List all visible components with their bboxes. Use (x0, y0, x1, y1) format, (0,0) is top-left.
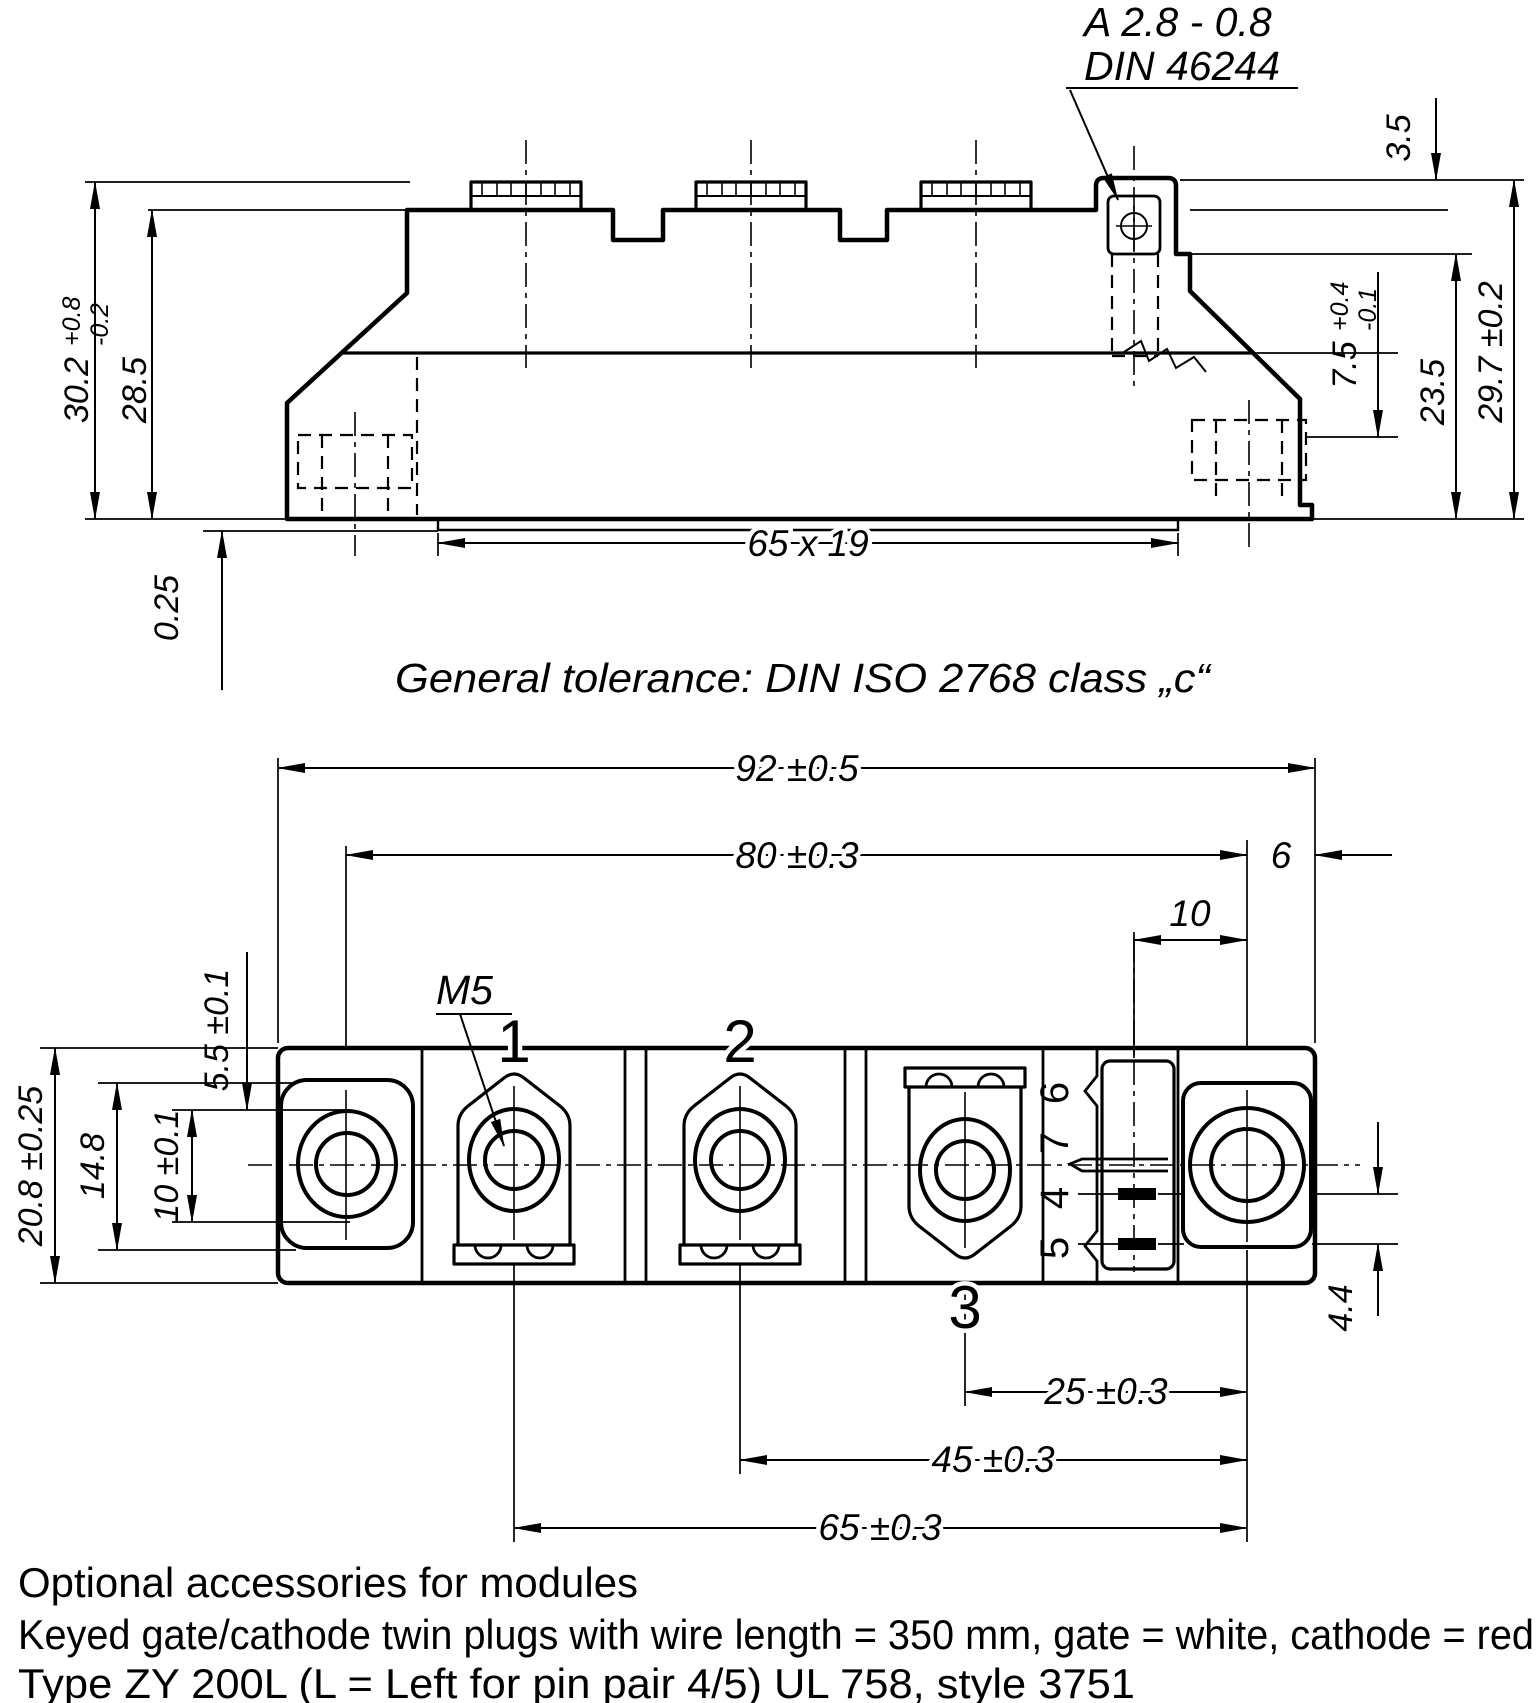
plug-note-line1: A 2.8 - 0.8 (1081, 0, 1272, 45)
thread-label-m5: M5 (436, 967, 493, 1013)
terminal-3-label: 3 (948, 1274, 981, 1341)
svg-text:30.2: 30.2 (58, 357, 96, 423)
footer-notes: Optional accessories for modules Keyed g… (18, 1559, 1534, 1703)
footer-line-2: Keyed gate/cathode twin plugs with wire … (18, 1611, 1534, 1658)
dim-6: 6 (1271, 835, 1292, 876)
dim-45: 45 ±0.3 (931, 1439, 1055, 1480)
dim-5-5: 5.5 ±0.1 (198, 969, 236, 1092)
side-extension-lines (85, 180, 1524, 556)
side-view: A 2.8 - 0.8 DIN 46244 3.5 30.2 +0.8 -0.2… (58, 0, 1524, 701)
dim-0-25: 0.25 (148, 575, 186, 641)
dim-65: 65 ±0.3 (818, 1507, 942, 1548)
side-dimension-lines (95, 88, 1514, 690)
svg-text:-0.2: -0.2 (86, 303, 114, 346)
dim-10: 10 (1169, 893, 1211, 934)
dim-23-5: 23.5 (1414, 359, 1452, 426)
pin-4-stub (1118, 1188, 1156, 1200)
terminal-2-label: 2 (723, 1008, 756, 1075)
dim-25: 25 ±0.3 (1043, 1371, 1168, 1412)
dim-4-4: 4.4 (1322, 1284, 1360, 1331)
dim-30-2: 30.2 +0.8 -0.2 (58, 297, 114, 424)
svg-text:5: 5 (1033, 1237, 1077, 1259)
dim-65x19: 65 x 19 (747, 523, 868, 564)
top-view: 92 ±0.5 80 ±0.3 6 10 M5 5.5 ±0.1 20.8 ±0… (12, 748, 1398, 1548)
dim-7-5: 7.5 +0.4 -0.1 (1326, 282, 1382, 389)
pin-5-label: 5 (1033, 1237, 1077, 1259)
svg-text:10 ±0.1: 10 ±0.1 (148, 1109, 186, 1222)
svg-text:28.5: 28.5 (116, 357, 154, 424)
svg-text:+0.4: +0.4 (1326, 282, 1354, 331)
dim-10-hole: 10 ±0.1 (148, 1109, 186, 1222)
svg-text:20.8 ±0.25: 20.8 ±0.25 (12, 1086, 50, 1248)
pin-7-label: 7 (1033, 1132, 1077, 1154)
svg-text:3.5: 3.5 (1380, 114, 1418, 161)
dim-20-8: 20.8 ±0.25 (12, 1086, 50, 1248)
gate-connector (1070, 938, 1174, 1272)
svg-text:4.4: 4.4 (1322, 1284, 1360, 1331)
pin-6-label: 6 (1033, 1082, 1077, 1104)
dim-3-5: 3.5 (1380, 114, 1418, 161)
terminal-1 (454, 1074, 574, 1264)
hidden-lines (298, 254, 1306, 519)
module-outline-drawing: A 2.8 - 0.8 DIN 46244 3.5 30.2 +0.8 -0.2… (0, 0, 1538, 1703)
center-lines (355, 140, 1249, 556)
terminal-2 (680, 1074, 800, 1264)
plug-note-line2: DIN 46244 (1084, 43, 1280, 89)
svg-text:23.5: 23.5 (1414, 359, 1452, 426)
svg-text:6: 6 (1033, 1082, 1077, 1104)
pin-4-label: 4 (1033, 1187, 1077, 1209)
svg-text:7: 7 (1033, 1132, 1077, 1154)
terminal-3 (905, 1068, 1025, 1258)
footer-line-1: Optional accessories for modules (18, 1559, 638, 1606)
svg-text:4: 4 (1033, 1187, 1077, 1209)
dim-14-8: 14.8 (74, 1133, 112, 1199)
svg-text:7.5: 7.5 (1326, 341, 1364, 388)
general-tolerance-note: General tolerance: DIN ISO 2768 class „c… (395, 655, 1212, 701)
top-extension-lines (40, 758, 1398, 1542)
dim-80: 80 ±0.3 (735, 835, 859, 876)
svg-text:-0.1: -0.1 (1354, 288, 1382, 331)
dim-29-7: 29.7 ±0.2 (1472, 281, 1510, 424)
svg-text:14.8: 14.8 (74, 1133, 112, 1199)
dim-28-5: 28.5 (116, 357, 154, 424)
footer-line-3: Type ZY 200L (L = Left for pin pair 4/5)… (18, 1660, 1135, 1703)
dim-92: 92 ±0.5 (735, 748, 859, 789)
drawing-sheet: A 2.8 - 0.8 DIN 46244 3.5 30.2 +0.8 -0.2… (0, 0, 1538, 1703)
terminal-1-label: 1 (497, 1008, 530, 1075)
svg-text:5.5 ±0.1: 5.5 ±0.1 (198, 969, 236, 1092)
svg-text:0.25: 0.25 (148, 575, 186, 641)
pin-5-stub (1118, 1238, 1156, 1250)
svg-text:+0.8: +0.8 (58, 297, 86, 346)
svg-text:29.7 ±0.2: 29.7 ±0.2 (1472, 281, 1510, 424)
